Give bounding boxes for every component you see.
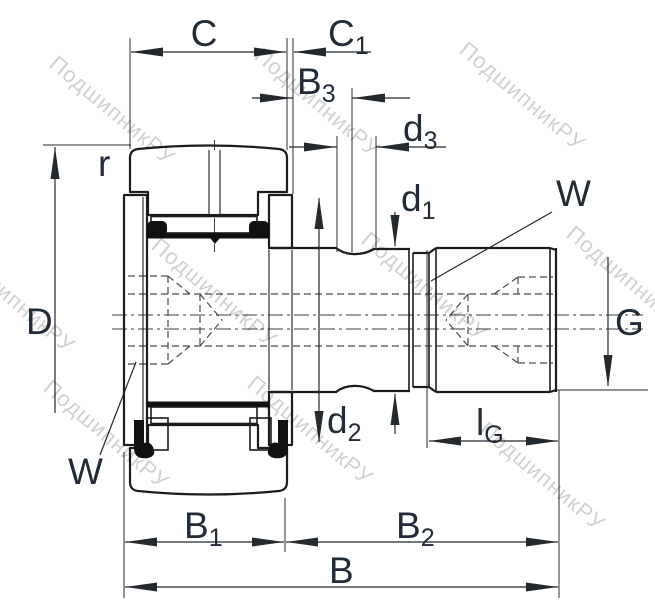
label-r: r — [98, 143, 110, 184]
label-B: B — [329, 550, 354, 591]
label-d3: d3 — [403, 108, 437, 155]
needle-roller-bottom — [151, 407, 257, 424]
label-G: G — [615, 302, 644, 343]
technical-drawing-page: C C1 B3 d3 d1 W r D d2 G lG B1 B2 B W По… — [0, 0, 655, 611]
label-C: C — [191, 13, 218, 54]
bearing-drawing: C C1 B3 d3 d1 W r D d2 G lG B1 B2 B W По… — [0, 0, 655, 611]
label-W-bottom: W — [68, 451, 103, 492]
label-d1: d1 — [401, 178, 435, 225]
watermark-text: ПодшипникРУ — [45, 51, 180, 170]
watermark-text: ПодшипникРУ — [475, 417, 610, 536]
watermark-text: ПодшипникРУ — [39, 375, 174, 494]
seal-top-right — [249, 221, 269, 236]
label-W-top: W — [556, 173, 591, 214]
dimension-d2 — [315, 197, 324, 443]
stud-outline — [147, 237, 556, 403]
label-B2: B2 — [396, 505, 435, 552]
watermark-text: ПодшипникРУ — [455, 37, 590, 156]
relief-dip-bottom — [336, 386, 374, 392]
label-B1: B1 — [184, 505, 223, 552]
watermark-text: ПодшипникРУ — [357, 227, 492, 346]
lube-hole — [209, 150, 220, 214]
right-washer-top — [269, 195, 292, 248]
dimension-D — [51, 147, 60, 413]
label-C1: C1 — [328, 13, 369, 60]
leader-w-top — [431, 212, 552, 281]
